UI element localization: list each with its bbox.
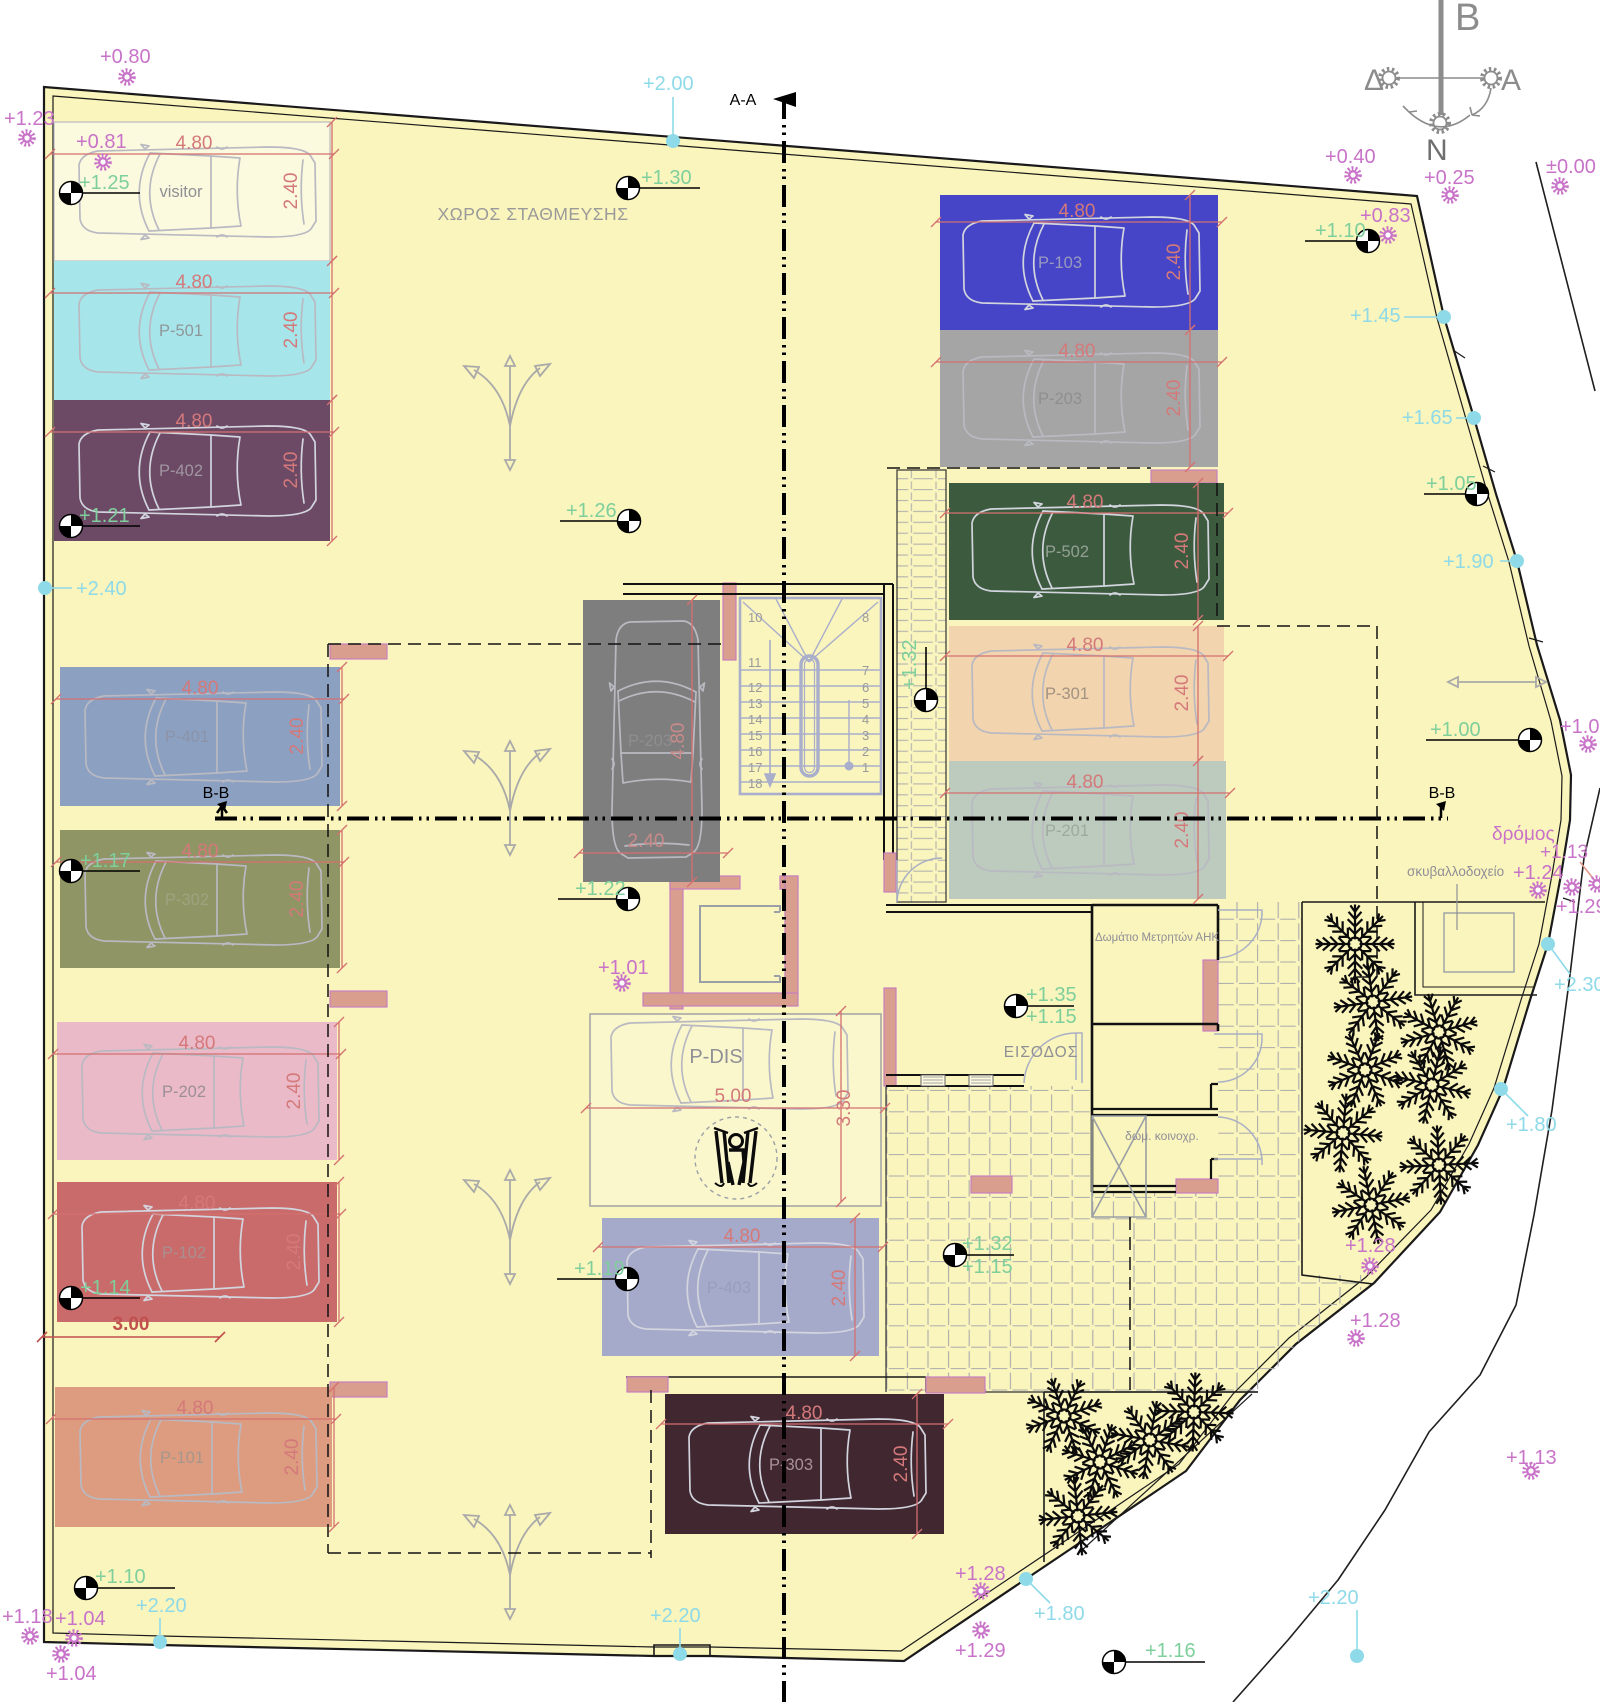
svg-text:2.40: 2.40 — [891, 1446, 912, 1483]
svg-text:+0.40: +0.40 — [1325, 146, 1376, 168]
svg-text:12: 12 — [748, 680, 762, 695]
svg-text:A: A — [1501, 64, 1521, 97]
svg-text:P-502: P-502 — [1045, 543, 1089, 561]
svg-text:+1.25: +1.25 — [79, 172, 130, 194]
svg-text:2.40: 2.40 — [281, 452, 302, 489]
svg-text:P-402: P-402 — [159, 462, 203, 480]
svg-text:4.80: 4.80 — [1059, 341, 1096, 362]
svg-text:+1.30: +1.30 — [641, 167, 692, 189]
svg-text:8: 8 — [862, 610, 869, 625]
svg-text:B-B: B-B — [1429, 785, 1456, 802]
svg-text:P-403: P-403 — [707, 1279, 751, 1297]
svg-text:2.40: 2.40 — [284, 1234, 305, 1271]
svg-text:δωμ. κοινοχρ.: δωμ. κοινοχρ. — [1125, 1129, 1199, 1143]
svg-text:16: 16 — [748, 744, 762, 759]
svg-text:2.40: 2.40 — [1164, 244, 1185, 281]
svg-text:+1.10: +1.10 — [95, 1566, 146, 1588]
svg-text:4.80: 4.80 — [179, 1033, 216, 1054]
svg-text:2.40: 2.40 — [287, 881, 308, 918]
svg-text:3.30: 3.30 — [834, 1090, 855, 1127]
svg-text:2.40: 2.40 — [628, 831, 665, 852]
svg-text:+1.28: +1.28 — [1350, 1310, 1401, 1332]
svg-text:2.40: 2.40 — [1172, 675, 1193, 712]
svg-text:+1.16: +1.16 — [1145, 1640, 1196, 1662]
svg-text:+0.83: +0.83 — [1360, 205, 1411, 227]
svg-text:+1.17: +1.17 — [80, 850, 131, 872]
svg-text:+2.20: +2.20 — [136, 1595, 187, 1617]
svg-text:+1.00: +1.00 — [1430, 719, 1481, 741]
svg-text:+1.45: +1.45 — [1350, 305, 1401, 327]
svg-text:B-B: B-B — [203, 785, 230, 802]
svg-text:+1.32: +1.32 — [962, 1233, 1013, 1255]
svg-text:4.80: 4.80 — [1067, 492, 1104, 513]
svg-text:7: 7 — [862, 663, 869, 678]
svg-text:+1.23: +1.23 — [4, 108, 55, 130]
svg-text:+1.21: +1.21 — [79, 505, 130, 527]
svg-text:+1.32: +1.32 — [899, 639, 921, 690]
svg-text:2.40: 2.40 — [1164, 380, 1185, 417]
svg-text:P-203: P-203 — [628, 732, 672, 750]
svg-text:4.80: 4.80 — [724, 1226, 761, 1247]
svg-text:+1.15: +1.15 — [1026, 1006, 1077, 1028]
svg-text:+2.00: +2.00 — [643, 73, 694, 95]
svg-text:+1.13: +1.13 — [1540, 842, 1588, 863]
svg-text:P-102: P-102 — [162, 1244, 206, 1262]
svg-text:+1.22: +1.22 — [575, 878, 626, 900]
svg-text:+1.80: +1.80 — [1506, 1114, 1557, 1136]
svg-text:P-101: P-101 — [160, 1449, 204, 1467]
svg-text:4.80: 4.80 — [1067, 635, 1104, 656]
svg-text:+1.26: +1.26 — [566, 500, 617, 522]
svg-text:+1.09: +1.09 — [1560, 716, 1600, 738]
svg-text:+1.18: +1.18 — [2, 1606, 53, 1628]
svg-text:ΕΙΣΟΔΟΣ: ΕΙΣΟΔΟΣ — [1004, 1044, 1079, 1061]
svg-text:N: N — [1426, 134, 1448, 167]
svg-text:14: 14 — [748, 712, 762, 727]
svg-text:3: 3 — [862, 728, 869, 743]
svg-text:+1.10: +1.10 — [1315, 220, 1366, 242]
svg-text:+2.40: +2.40 — [76, 578, 127, 600]
svg-text:1: 1 — [862, 760, 869, 775]
svg-text:±0.00: ±0.00 — [1546, 156, 1596, 178]
svg-text:4.80: 4.80 — [786, 1403, 823, 1424]
svg-text:2.40: 2.40 — [282, 1439, 303, 1476]
svg-text:P-203: P-203 — [1038, 390, 1082, 408]
svg-text:+0.25: +0.25 — [1424, 167, 1475, 189]
svg-text:B: B — [1455, 0, 1480, 39]
svg-text:13: 13 — [748, 696, 762, 711]
svg-text:+1.29: +1.29 — [1556, 896, 1600, 918]
svg-text:2.40: 2.40 — [287, 718, 308, 755]
svg-text:P-302: P-302 — [165, 891, 209, 909]
svg-text:P-103: P-103 — [1038, 254, 1082, 272]
svg-text:4.80: 4.80 — [176, 133, 213, 154]
svg-text:2.40: 2.40 — [284, 1073, 305, 1110]
svg-text:+1.35: +1.35 — [1026, 984, 1077, 1006]
svg-text:+2.20: +2.20 — [650, 1605, 701, 1627]
svg-text:4.80: 4.80 — [182, 841, 219, 862]
svg-text:+1.14: +1.14 — [80, 1277, 131, 1299]
svg-text:P-303: P-303 — [769, 1456, 813, 1474]
svg-text:6: 6 — [862, 680, 869, 695]
svg-text:Δωμάτιο Μετρητών ΑΗΚ: Δωμάτιο Μετρητών ΑΗΚ — [1095, 932, 1219, 944]
svg-text:4.80: 4.80 — [179, 1193, 216, 1214]
svg-text:10: 10 — [748, 610, 762, 625]
svg-text:A-A: A-A — [730, 92, 757, 109]
svg-text:+1.19: +1.19 — [574, 1258, 625, 1280]
svg-text:visitor: visitor — [159, 183, 203, 201]
svg-text:Δ: Δ — [1364, 64, 1384, 97]
svg-text:4.80: 4.80 — [176, 411, 213, 432]
svg-text:+1.28: +1.28 — [1345, 1235, 1396, 1257]
svg-text:+1.01: +1.01 — [598, 957, 649, 979]
svg-text:P-201: P-201 — [1045, 822, 1089, 840]
svg-text:2.40: 2.40 — [829, 1270, 850, 1307]
svg-text:σκυβαλλοδοχείο: σκυβαλλοδοχείο — [1407, 864, 1504, 879]
svg-text:17: 17 — [748, 760, 762, 775]
svg-text:+2.20: +2.20 — [1308, 1587, 1359, 1609]
svg-text:+1.24: +1.24 — [1513, 862, 1564, 884]
svg-text:4.80: 4.80 — [177, 1398, 214, 1419]
svg-text:+1.04: +1.04 — [46, 1663, 97, 1685]
svg-text:+1.15: +1.15 — [962, 1256, 1013, 1278]
svg-text:4.80: 4.80 — [1059, 201, 1096, 222]
svg-text:4.80: 4.80 — [182, 678, 219, 699]
svg-text:+2.30: +2.30 — [1554, 974, 1600, 996]
svg-text:P-401: P-401 — [165, 728, 209, 746]
svg-text:P-202: P-202 — [162, 1083, 206, 1101]
svg-text:+1.05: +1.05 — [1426, 473, 1477, 495]
svg-text:5: 5 — [862, 696, 869, 711]
svg-text:+1.90: +1.90 — [1443, 551, 1494, 573]
svg-text:+1.29: +1.29 — [955, 1640, 1006, 1662]
svg-text:11: 11 — [748, 655, 762, 670]
svg-text:P-301: P-301 — [1045, 685, 1089, 703]
svg-text:2.40: 2.40 — [281, 173, 302, 210]
svg-text:5.00: 5.00 — [715, 1086, 752, 1107]
svg-text:15: 15 — [748, 728, 762, 743]
svg-text:4: 4 — [862, 712, 869, 727]
svg-text:2.40: 2.40 — [281, 312, 302, 349]
svg-text:+1.04: +1.04 — [55, 1608, 106, 1630]
svg-text:P-501: P-501 — [159, 322, 203, 340]
svg-text:P-DIS: P-DIS — [689, 1046, 742, 1068]
svg-text:2: 2 — [862, 744, 869, 759]
svg-text:4.80: 4.80 — [1067, 772, 1104, 793]
svg-text:18: 18 — [748, 776, 762, 791]
svg-text:3.00: 3.00 — [113, 1314, 150, 1335]
svg-text:ΧΩΡΟΣ ΣΤΑΘΜΕΥΣΗΣ: ΧΩΡΟΣ ΣΤΑΘΜΕΥΣΗΣ — [437, 204, 628, 224]
svg-text:+0.81: +0.81 — [76, 131, 127, 153]
svg-text:+1.80: +1.80 — [1034, 1603, 1085, 1625]
svg-text:2.40: 2.40 — [1172, 533, 1193, 570]
svg-text:+1.65: +1.65 — [1402, 407, 1453, 429]
svg-text:+0.80: +0.80 — [100, 46, 151, 68]
svg-text:4.80: 4.80 — [176, 272, 213, 293]
svg-text:+1.28: +1.28 — [955, 1563, 1006, 1585]
